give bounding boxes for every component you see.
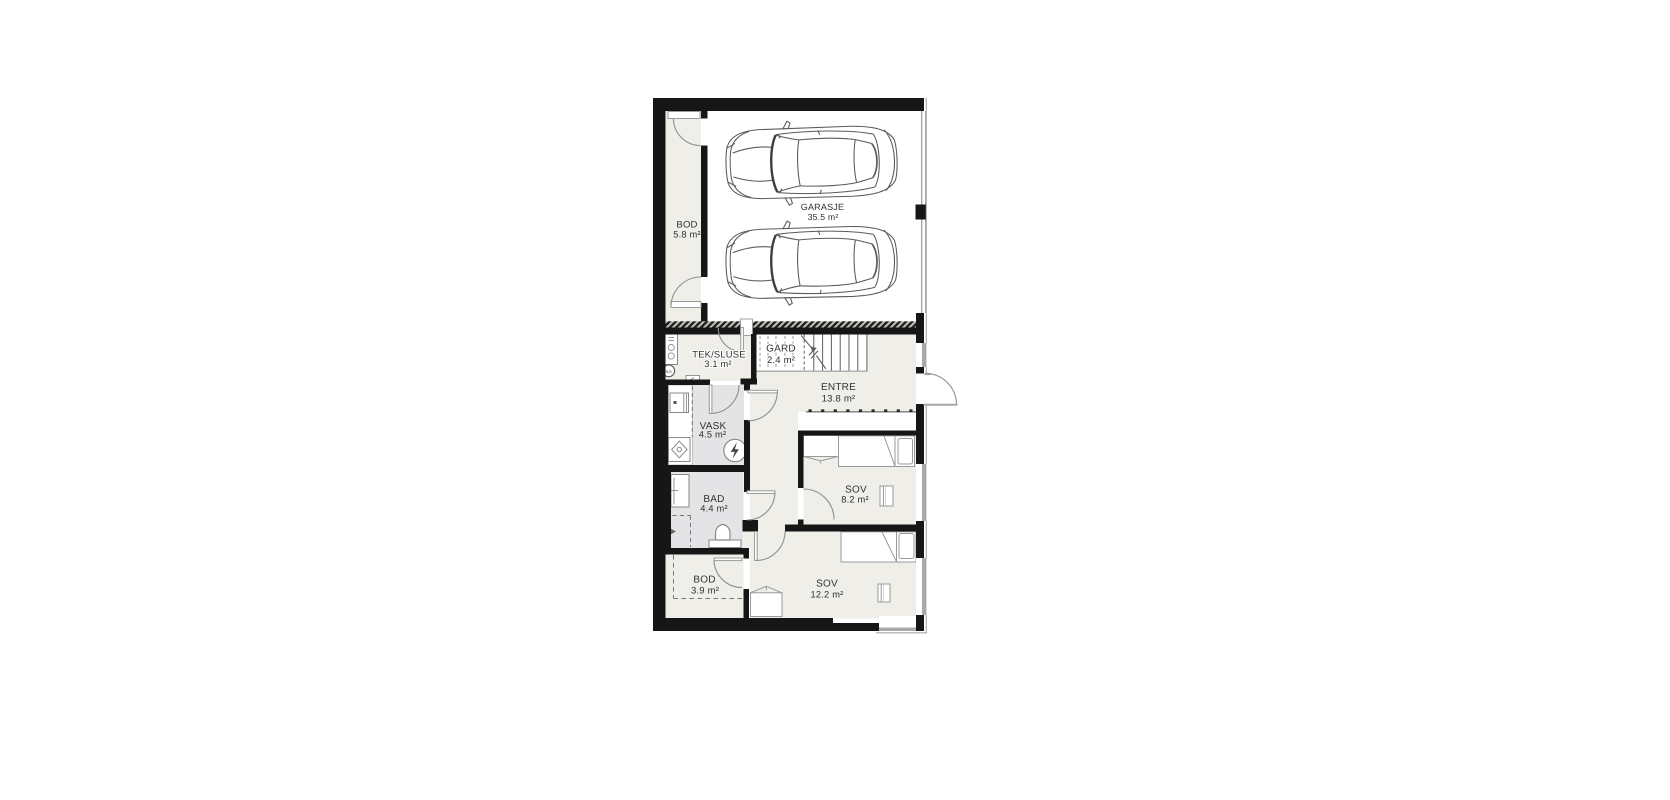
svg-text:35.5 m²: 35.5 m² (808, 212, 839, 222)
svg-text:ENTRE: ENTRE (821, 382, 856, 393)
svg-text:BOD: BOD (693, 575, 715, 586)
svg-text:5.5: 5.5 (666, 369, 672, 374)
svg-text:GARASJE: GARASJE (801, 202, 844, 212)
svg-text:TEK/SLUSE: TEK/SLUSE (692, 349, 745, 360)
svg-text:GARD: GARD (766, 344, 796, 355)
svg-text:5.8 m²: 5.8 m² (673, 230, 701, 240)
svg-text:12.2 m²: 12.2 m² (811, 590, 844, 600)
svg-text:SOV: SOV (816, 579, 838, 590)
svg-text:3.9 m²: 3.9 m² (691, 586, 719, 597)
svg-text:4.4 m²: 4.4 m² (700, 504, 728, 514)
svg-text:3.1 m²: 3.1 m² (704, 359, 732, 369)
svg-text:8.2 m²: 8.2 m² (841, 495, 869, 505)
svg-text:2.4 m²: 2.4 m² (767, 355, 795, 366)
svg-text:4.5 m²: 4.5 m² (699, 430, 727, 440)
svg-text:13.8 m²: 13.8 m² (822, 394, 856, 405)
